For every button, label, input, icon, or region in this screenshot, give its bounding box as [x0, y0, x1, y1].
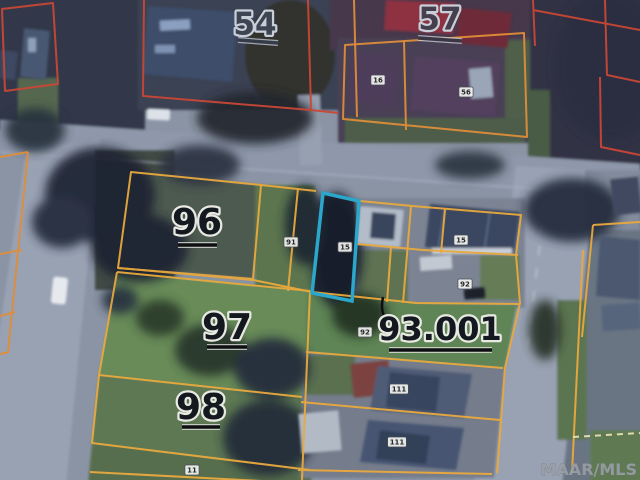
parcel-number-label: 97 — [202, 307, 252, 348]
address-chip-text: 56 — [461, 89, 471, 97]
address-chip-text: 15 — [456, 237, 466, 245]
white-truck — [147, 108, 171, 120]
aerial-parcel-map: 1656911515929211111111 545796979893.001 … — [0, 0, 640, 480]
parcel-number-label: 93.001 — [378, 310, 501, 348]
mls-watermark: MAAR/MLS — [541, 460, 638, 479]
parcel-number-label: 96 — [172, 202, 222, 243]
address-chip-text: 111 — [390, 439, 405, 447]
parcel-number-label: 98 — [176, 387, 226, 428]
address-chip-text: 111 — [392, 386, 407, 394]
white-car — [51, 276, 69, 304]
parcel-number-label: 54 — [233, 7, 276, 43]
parcel-number-label: 57 — [418, 2, 461, 38]
address-chip-text: 92 — [460, 281, 470, 289]
address-chip-text: 92 — [360, 329, 370, 337]
address-chip-text: 15 — [340, 244, 350, 252]
address-chip-text: 11 — [187, 467, 197, 475]
parcel-map-image: 1656911515929211111111 545796979893.001 … — [0, 0, 640, 480]
address-chip-text: 91 — [286, 239, 296, 247]
address-chip-text: 16 — [373, 77, 383, 85]
